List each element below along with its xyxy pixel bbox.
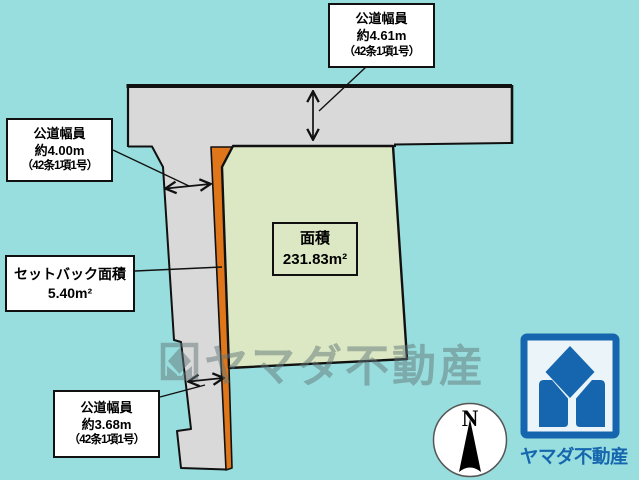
label-line: （42条1項1号）: [344, 45, 420, 60]
parcel-area-title: 面積: [300, 228, 330, 249]
road-bottom-edge-right: [395, 143, 512, 147]
label-line: セットバック面積: [14, 265, 126, 283]
parcel-area-value: 231.83m²: [283, 249, 347, 270]
road-width-label-bottom: 公道幅員 約3.68m （42条1項1号）: [53, 390, 160, 458]
road-width-label-top: 公道幅員 約4.61m （42条1項1号）: [328, 3, 435, 68]
label-line: 公道幅員: [355, 11, 407, 28]
site-plan-diagram: ヤマダ不動産 N 公道幅員 約4.61m （42条1項1号） 公道幅員 約4.0…: [0, 0, 639, 480]
label-line: 5.40m²: [48, 284, 92, 302]
label-line: （42条1項1号）: [22, 159, 98, 174]
road-top: [128, 86, 512, 147]
label-line: 約3.68m: [82, 417, 132, 434]
label-line: （42条1項1号）: [69, 433, 145, 448]
parcel-area-box: 面積 231.83m²: [272, 222, 358, 276]
watermark: ヤマダ不動産: [163, 342, 486, 391]
label-line: 公道幅員: [33, 126, 85, 143]
watermark-text: ヤマダ不動産: [204, 342, 486, 391]
yamada-logo-icon: [524, 337, 616, 435]
brand-name: ヤマダ不動産: [516, 443, 632, 469]
label-line: 約4.00m: [35, 143, 85, 160]
north-compass-icon: N: [434, 404, 507, 477]
road-width-label-left: 公道幅員 約4.00m （42条1項1号）: [6, 118, 113, 182]
setback-area-label: セットバック面積 5.40m²: [5, 255, 135, 312]
label-line: 約4.61m: [357, 28, 407, 45]
label-line: 公道幅員: [80, 400, 132, 417]
